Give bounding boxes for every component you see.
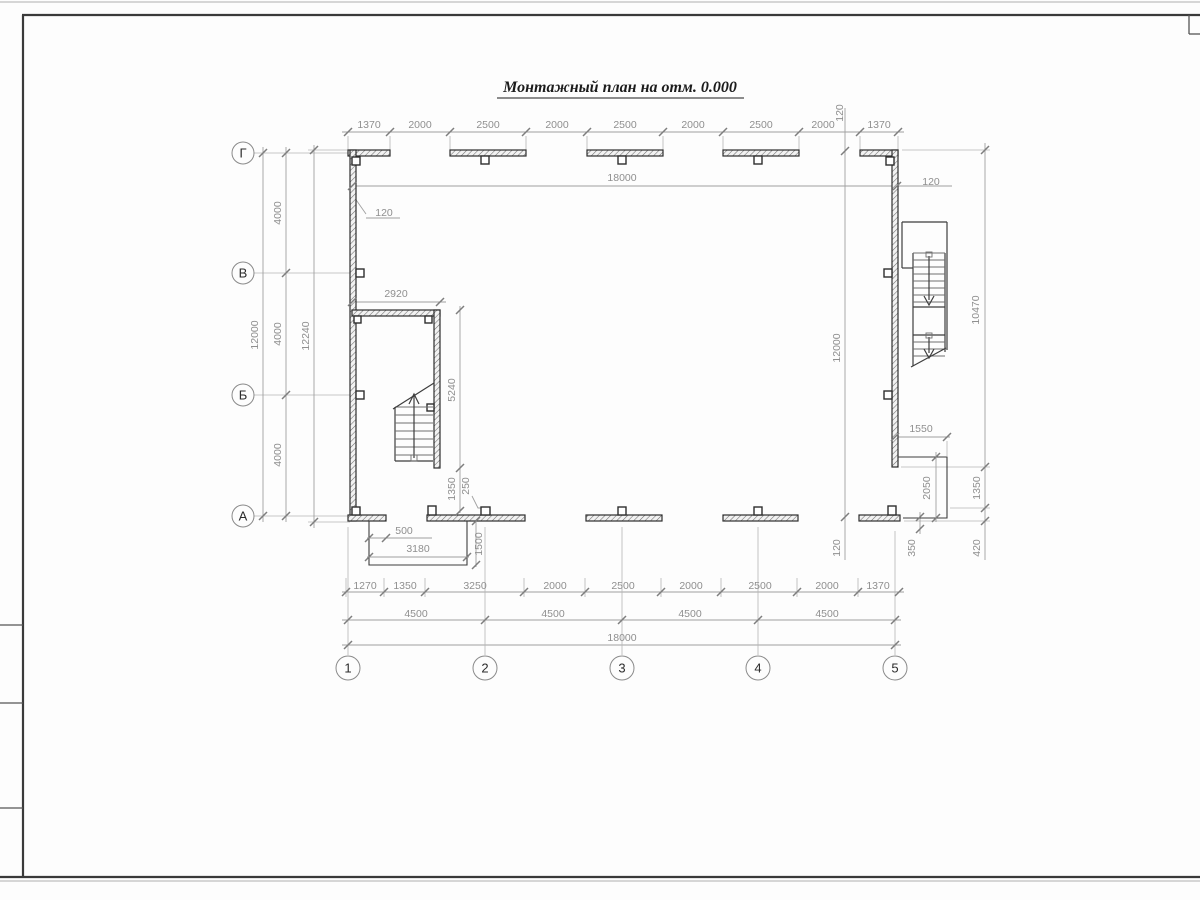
- dim-label: 2500: [749, 119, 773, 131]
- column-axis-bubbles: 12345: [336, 656, 907, 680]
- dim-label: 2050: [921, 476, 933, 500]
- exterior-walls: [348, 150, 900, 521]
- dim-label: 500: [395, 525, 413, 537]
- dim-label: 18000: [607, 172, 636, 184]
- drawing-sheet: 1370200025002000250020002500200013701201…: [0, 0, 1200, 900]
- dimension-lines: [254, 108, 990, 655]
- dim-label: 4000: [272, 201, 284, 225]
- dim-label: 2000: [545, 119, 569, 131]
- interior-partition-walls: [352, 310, 440, 468]
- right-staircase: [902, 222, 947, 367]
- dim-label: 12000: [831, 333, 843, 362]
- column-bubble-label: 3: [618, 661, 625, 676]
- dim-label: 2000: [815, 580, 839, 592]
- column-bubble-label: 4: [754, 661, 761, 676]
- dim-label: 1270: [353, 580, 377, 592]
- drawing-title: Монтажный план на отм. 0.000: [497, 79, 744, 98]
- row-bubble-label: А: [239, 509, 248, 524]
- row-bubble-label: Б: [239, 388, 248, 403]
- column-bubble-label: 2: [481, 661, 488, 676]
- dim-label: 2920: [384, 288, 408, 300]
- dim-label: 120: [834, 104, 846, 122]
- dim-label: 1550: [909, 423, 933, 435]
- dim-label: 4500: [678, 608, 702, 620]
- dim-label: 2500: [613, 119, 637, 131]
- dim-label: 120: [375, 207, 393, 219]
- dim-label: 420: [971, 539, 983, 557]
- dim-label: 10470: [970, 295, 982, 324]
- dim-label: 5240: [446, 378, 458, 402]
- dim-label: 1350: [446, 477, 458, 501]
- dim-label: 12240: [300, 321, 312, 350]
- dim-label: 12000: [249, 320, 261, 349]
- dim-label: 2500: [748, 580, 772, 592]
- row-bubble-label: Г: [239, 146, 246, 161]
- dim-label: 4000: [272, 443, 284, 467]
- dim-label: 120: [922, 176, 940, 188]
- dim-label: 18000: [607, 632, 636, 644]
- dim-label: 1370: [866, 580, 890, 592]
- dim-label: 1370: [357, 119, 381, 131]
- dim-label: 1350: [971, 476, 983, 500]
- dim-label: 3250: [463, 580, 487, 592]
- dim-label: 1350: [393, 580, 417, 592]
- dim-label: 4500: [541, 608, 565, 620]
- dim-label: 4500: [404, 608, 428, 620]
- sheet-frame: [0, 2, 1200, 881]
- dimension-ticks: [259, 128, 989, 649]
- dim-label: 250: [460, 477, 472, 495]
- column-bubble-label: 1: [344, 661, 351, 676]
- dim-label: 2000: [679, 580, 703, 592]
- dim-label: 1370: [867, 119, 891, 131]
- title-text: Монтажный план на отм. 0.000: [502, 79, 737, 96]
- dim-label: 3180: [406, 543, 430, 555]
- dim-label: 2500: [611, 580, 635, 592]
- floor-plan-drawing: 1370200025002000250020002500200013701201…: [0, 0, 1200, 900]
- stair-direction-arrow-up: [409, 394, 419, 461]
- left-staircase: [393, 383, 434, 461]
- dim-label: 2000: [811, 119, 835, 131]
- dim-label: 350: [906, 539, 918, 557]
- dim-label: 4500: [815, 608, 839, 620]
- dim-label: 2500: [476, 119, 500, 131]
- dim-label: 4000: [272, 322, 284, 346]
- dim-label: 2000: [408, 119, 432, 131]
- row-bubble-label: В: [239, 266, 248, 281]
- dimension-labels: 1370200025002000250020002500200013701201…: [249, 104, 983, 644]
- dim-label: 2000: [681, 119, 705, 131]
- column-bubble-label: 5: [891, 661, 898, 676]
- dim-label: 120: [831, 539, 843, 557]
- dim-label: 1500: [473, 532, 485, 556]
- stair-direction-arrow-down-2: [924, 333, 934, 358]
- dim-label: 2000: [543, 580, 567, 592]
